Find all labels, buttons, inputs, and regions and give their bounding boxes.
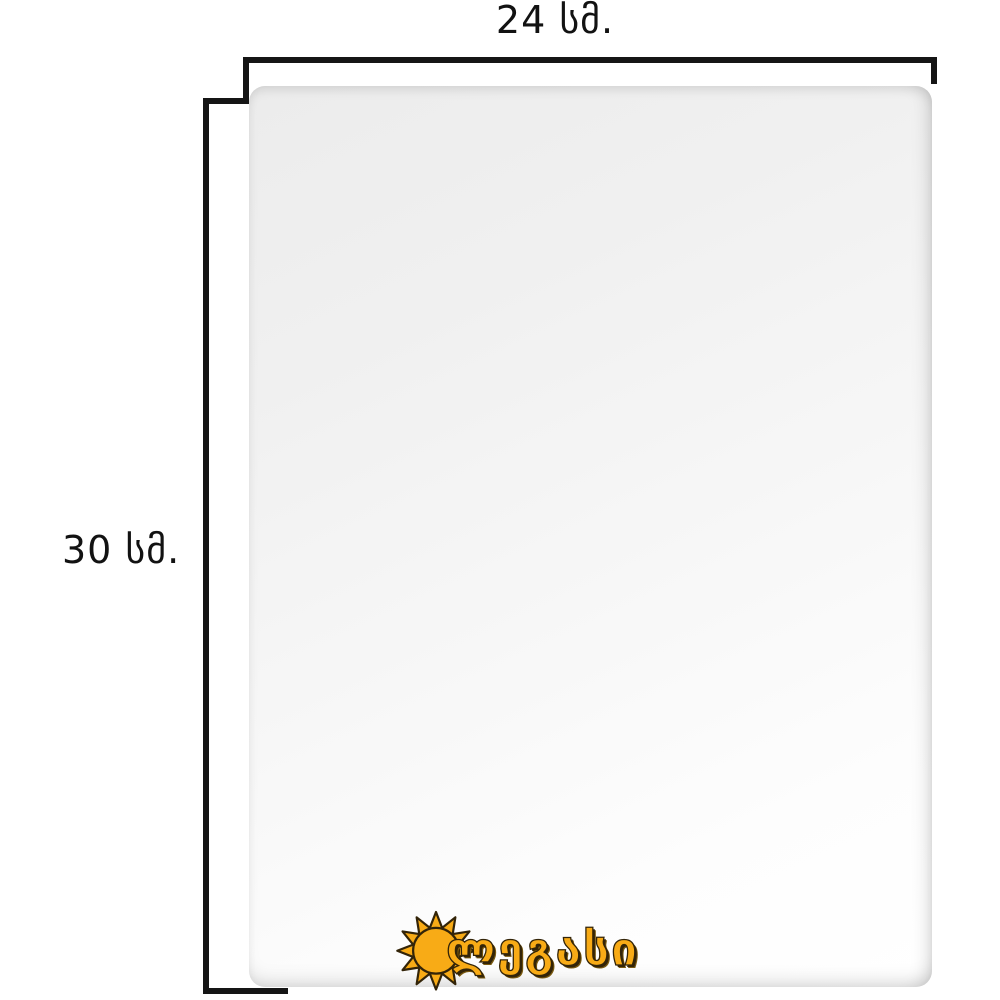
canvas-panel — [249, 86, 932, 987]
dimension-line-top — [243, 57, 937, 63]
dimension-tick-left-bottom — [203, 988, 288, 994]
width-dimension-label: 24 სმ. — [440, 0, 670, 42]
brand-logo: ლეგასი — [392, 905, 639, 993]
product-image: 24 სმ. 30 სმ. ლეგასი — [0, 0, 1000, 1000]
brand-logo-text: ლეგასი — [446, 905, 639, 993]
dimension-tick-top-left — [243, 57, 249, 104]
dimension-tick-left-top — [203, 98, 249, 104]
height-dimension-label: 30 სმ. — [62, 528, 180, 572]
dimension-line-left — [203, 98, 209, 994]
dimension-tick-top-right — [931, 57, 937, 84]
